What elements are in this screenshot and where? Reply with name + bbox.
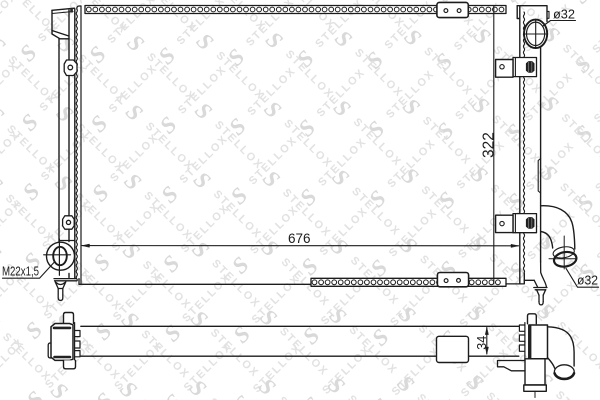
svg-text:M22x1,5: M22x1,5 [2, 265, 39, 279]
svg-text:34: 34 [475, 336, 489, 350]
svg-text:ø32: ø32 [553, 7, 575, 22]
svg-text:ø32: ø32 [577, 273, 598, 288]
svg-text:322: 322 [481, 132, 498, 158]
svg-text:676: 676 [288, 231, 311, 246]
